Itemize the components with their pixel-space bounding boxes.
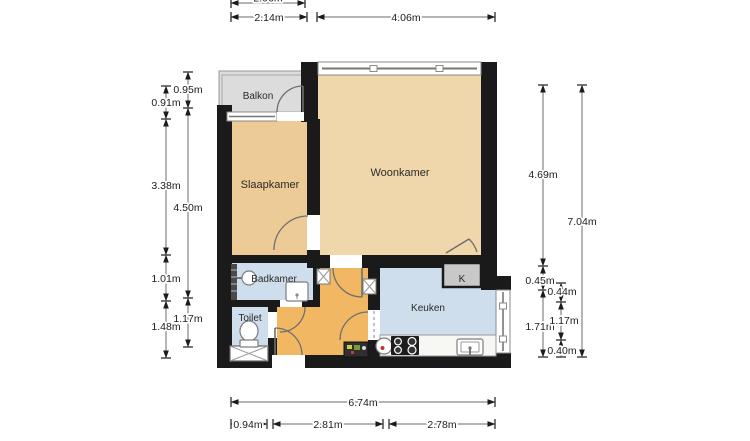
floorplan-svg: K [0, 0, 750, 441]
svg-text:3.38m: 3.38m [151, 180, 180, 192]
svg-text:0.95m: 0.95m [173, 84, 202, 96]
wall-left [217, 105, 232, 368]
kitchen-sink-icon [457, 339, 483, 355]
washing-machine-icon [376, 338, 392, 354]
svg-text:4.06m: 4.06m [391, 12, 420, 24]
window-mullion-1 [370, 66, 377, 72]
svg-text:2.06m: 2.06m [253, 0, 282, 5]
dim-bottom-total: 6.74m [231, 397, 495, 409]
label-woonkamer: Woonkamer [370, 167, 429, 179]
label-toilet: Toilet [238, 313, 262, 324]
dim-bottom-1: 0.94m [231, 419, 267, 431]
toilet-vent-window [230, 346, 268, 361]
label-balkon: Balkon [243, 91, 274, 102]
dim-left-inner: 0.95m 4.50m 1.17m [173, 72, 202, 347]
shaft-icon-2 [363, 279, 376, 294]
dim-top-clipped: 2.06m [231, 0, 305, 8]
svg-text:0.44m: 0.44m [547, 286, 576, 298]
kast-closet: K [443, 263, 481, 287]
svg-text:6.74m: 6.74m [348, 397, 377, 409]
floorplan-page: K [0, 0, 750, 441]
svg-text:1.17m: 1.17m [549, 315, 578, 327]
appliance-box [344, 342, 368, 357]
door-gap-woonkamer [330, 255, 362, 268]
door-gap-slaapkamer [307, 215, 320, 250]
dim-right-mid: 0.44m 1.17m 0.40m [547, 283, 578, 357]
label-slaapkamer: Slaapkamer [241, 179, 300, 191]
svg-text:1.17m: 1.17m [173, 313, 202, 325]
door-gap-entrance [272, 355, 305, 368]
svg-text:2.81m: 2.81m [313, 419, 342, 431]
stove-icon [391, 336, 419, 355]
window-mullion-2 [436, 66, 443, 72]
svg-text:0.40m: 0.40m [547, 345, 576, 357]
wall-keuken-bottom-right [496, 353, 511, 368]
window-keuken-mullion-1 [500, 303, 507, 309]
toilet-icon [240, 321, 258, 347]
shaft-icon-1 [317, 269, 330, 284]
kast-label: K [459, 274, 466, 285]
dim-top-2: 4.06m [317, 12, 495, 24]
svg-text:4.50m: 4.50m [173, 202, 202, 214]
dim-top-1: 2.14m [231, 12, 307, 24]
svg-text:4.69m: 4.69m [528, 169, 557, 181]
dim-bottom-2: 2.81m [273, 419, 383, 431]
radiator-icon [231, 264, 237, 300]
svg-text:2.14m: 2.14m [254, 12, 283, 24]
svg-text:7.04m: 7.04m [567, 216, 596, 228]
label-badkamer: Badkamer [251, 274, 297, 285]
svg-text:0.91m: 0.91m [151, 97, 180, 109]
label-keuken: Keuken [411, 303, 445, 314]
wall-keuken-top-right [483, 276, 511, 290]
door-gap-balkon [277, 112, 304, 121]
svg-text:2.78m: 2.78m [427, 419, 456, 431]
dim-bottom-3: 2.78m [389, 419, 495, 431]
window-keuken-mullion-2 [500, 336, 507, 342]
svg-text:0.94m: 0.94m [233, 419, 262, 431]
svg-text:1.01m: 1.01m [151, 273, 180, 285]
